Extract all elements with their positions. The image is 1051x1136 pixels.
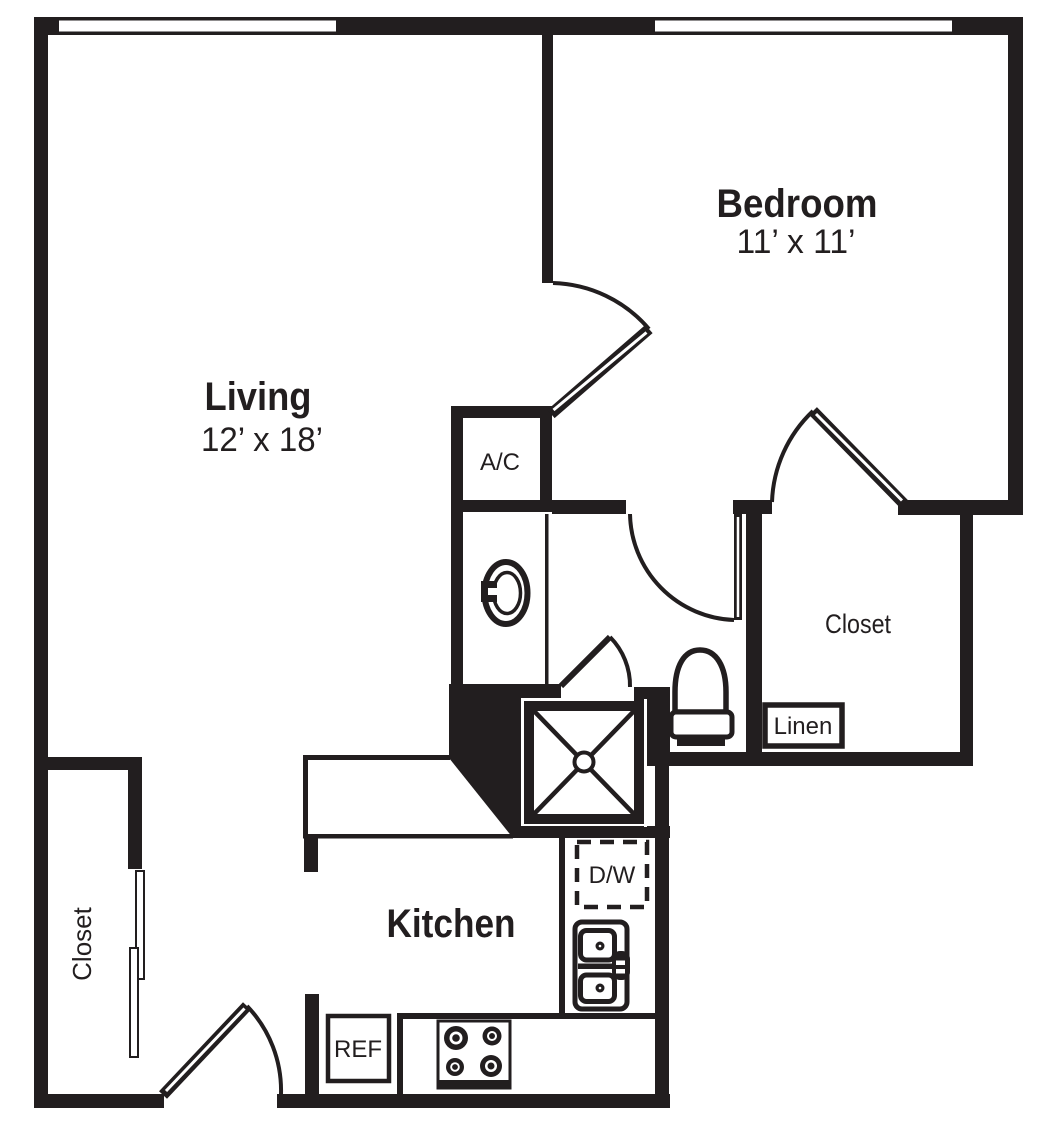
svg-text:Kitchen: Kitchen [387, 902, 516, 946]
svg-text:Closet: Closet [67, 906, 97, 980]
svg-text:11’ x 11’: 11’ x 11’ [737, 223, 856, 261]
svg-text:12’ x 18’: 12’ x 18’ [201, 421, 323, 459]
svg-text:REF: REF [334, 1036, 382, 1063]
svg-text:D/W: D/W [589, 862, 636, 889]
svg-text:Bedroom: Bedroom [717, 182, 878, 226]
svg-text:A/C: A/C [480, 449, 520, 476]
svg-text:Closet: Closet [825, 609, 891, 639]
svg-text:Linen: Linen [774, 713, 833, 740]
svg-text:Living: Living [205, 375, 312, 419]
